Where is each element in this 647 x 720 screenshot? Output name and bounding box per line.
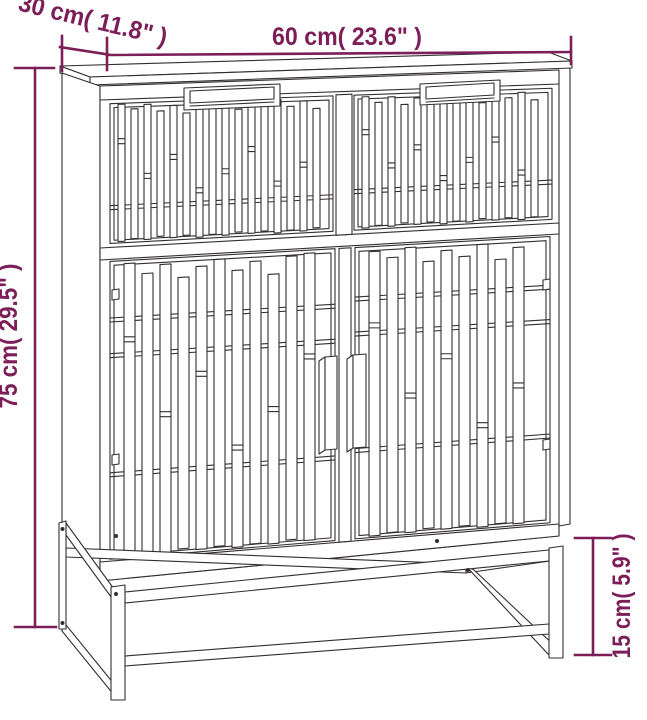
depth-dimension-line (60, 47, 108, 55)
height-label: 75 cm( 29.5" ) (0, 264, 23, 409)
dimension-leg-height (575, 538, 611, 655)
width-label: 60 cm( 23.6" ) (272, 23, 422, 51)
dimension-diagram-page: 30 cm( 11.8" ) 60 cm( 23.6" ) 75 cm( 29.… (0, 0, 647, 720)
depth-label: 30 cm( 11.8" ) (16, 0, 170, 52)
leg-height-label: 15 cm( 5.9" ) (608, 534, 636, 659)
cabinet-dimension-drawing: 30 cm( 11.8" ) 60 cm( 23.6" ) 75 cm( 29.… (0, 0, 647, 720)
cabinet-line-art (59, 52, 572, 700)
